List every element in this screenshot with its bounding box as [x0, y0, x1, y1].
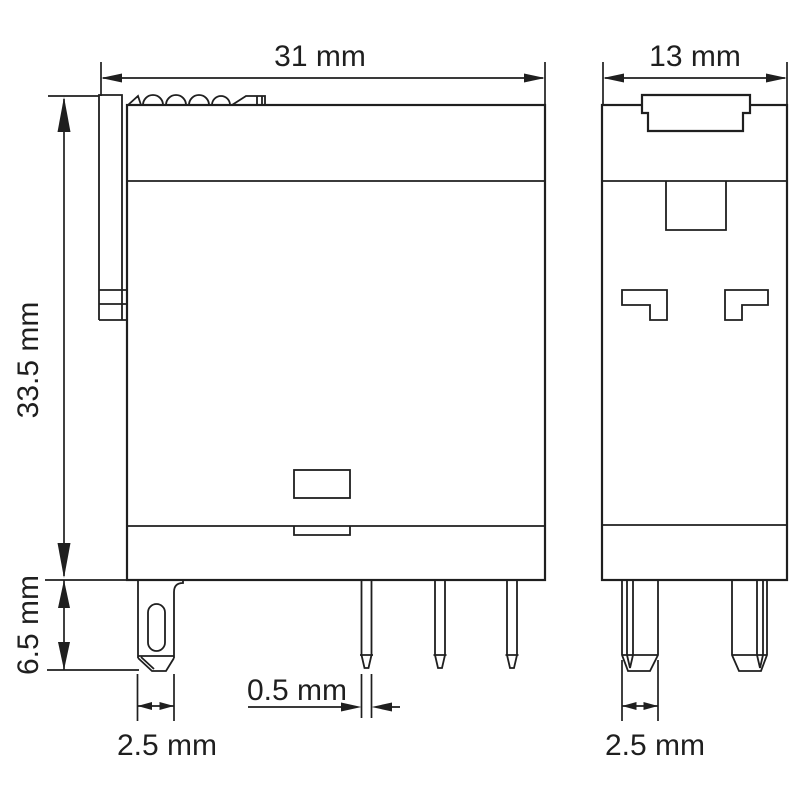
arrowhead-right	[524, 74, 545, 83]
indicator-window	[294, 470, 350, 498]
arrowhead-right	[766, 74, 787, 83]
dim-label-pin-length: 6.5 mm	[12, 575, 45, 675]
dim-side-pin-width: 2.5 mm	[605, 660, 705, 762]
dim-pin-length: 6.5 mm	[12, 575, 139, 675]
arrowhead-left	[622, 702, 637, 710]
front-pin-thin-3	[506, 580, 519, 668]
arrowhead-down	[58, 543, 71, 578]
front-pin-thin-1	[360, 580, 373, 668]
arrowhead-left	[603, 74, 624, 83]
pin-slot-hole	[148, 604, 165, 651]
arrowhead-right	[644, 702, 659, 710]
arrowhead-left	[138, 702, 153, 710]
arrowhead-left	[372, 703, 393, 712]
arrowhead-left	[101, 74, 122, 83]
dim-label-side-depth: 13 mm	[649, 40, 741, 73]
drawing-canvas: 31 mm 13 mm 33.5 mm 6.5 mm 2.5 mm 0.5 mm	[0, 0, 800, 800]
arrowhead-up	[58, 97, 71, 132]
dim-label-side-pin-width: 2.5 mm	[605, 729, 705, 762]
side-view	[602, 95, 787, 671]
arrowhead-down	[58, 642, 70, 670]
front-body-outline	[127, 105, 545, 580]
front-pin-slotted	[138, 580, 183, 671]
dim-pin-thickness: 0.5 mm	[247, 674, 400, 718]
side-latch-pocket	[666, 181, 726, 230]
side-body-outline	[602, 105, 787, 580]
side-pin-left	[622, 580, 658, 671]
release-lever	[99, 95, 127, 320]
front-bottom-line	[127, 526, 545, 535]
dim-front-width: 31 mm	[101, 40, 545, 105]
dim-label-pin-thickness: 0.5 mm	[247, 674, 347, 707]
front-top-serration	[128, 95, 265, 105]
side-cutout-left	[622, 290, 667, 320]
dim-label-front-pin-width: 2.5 mm	[117, 729, 217, 762]
dimension-drawing: 31 mm 13 mm 33.5 mm 6.5 mm 2.5 mm 0.5 mm	[0, 0, 800, 800]
side-top-tab	[642, 95, 750, 131]
side-cutout-right	[725, 290, 768, 320]
arrowhead-up	[58, 580, 70, 608]
arrowhead-right	[160, 702, 175, 710]
front-pin-thin-2	[434, 580, 447, 668]
dim-body-height: 33.5 mm	[12, 96, 99, 578]
dim-front-pin-width: 2.5 mm	[117, 674, 217, 762]
dim-label-front-width: 31 mm	[274, 40, 366, 73]
side-pin-right	[732, 580, 767, 671]
front-view	[99, 95, 545, 671]
dim-label-body-height: 33.5 mm	[12, 302, 45, 419]
